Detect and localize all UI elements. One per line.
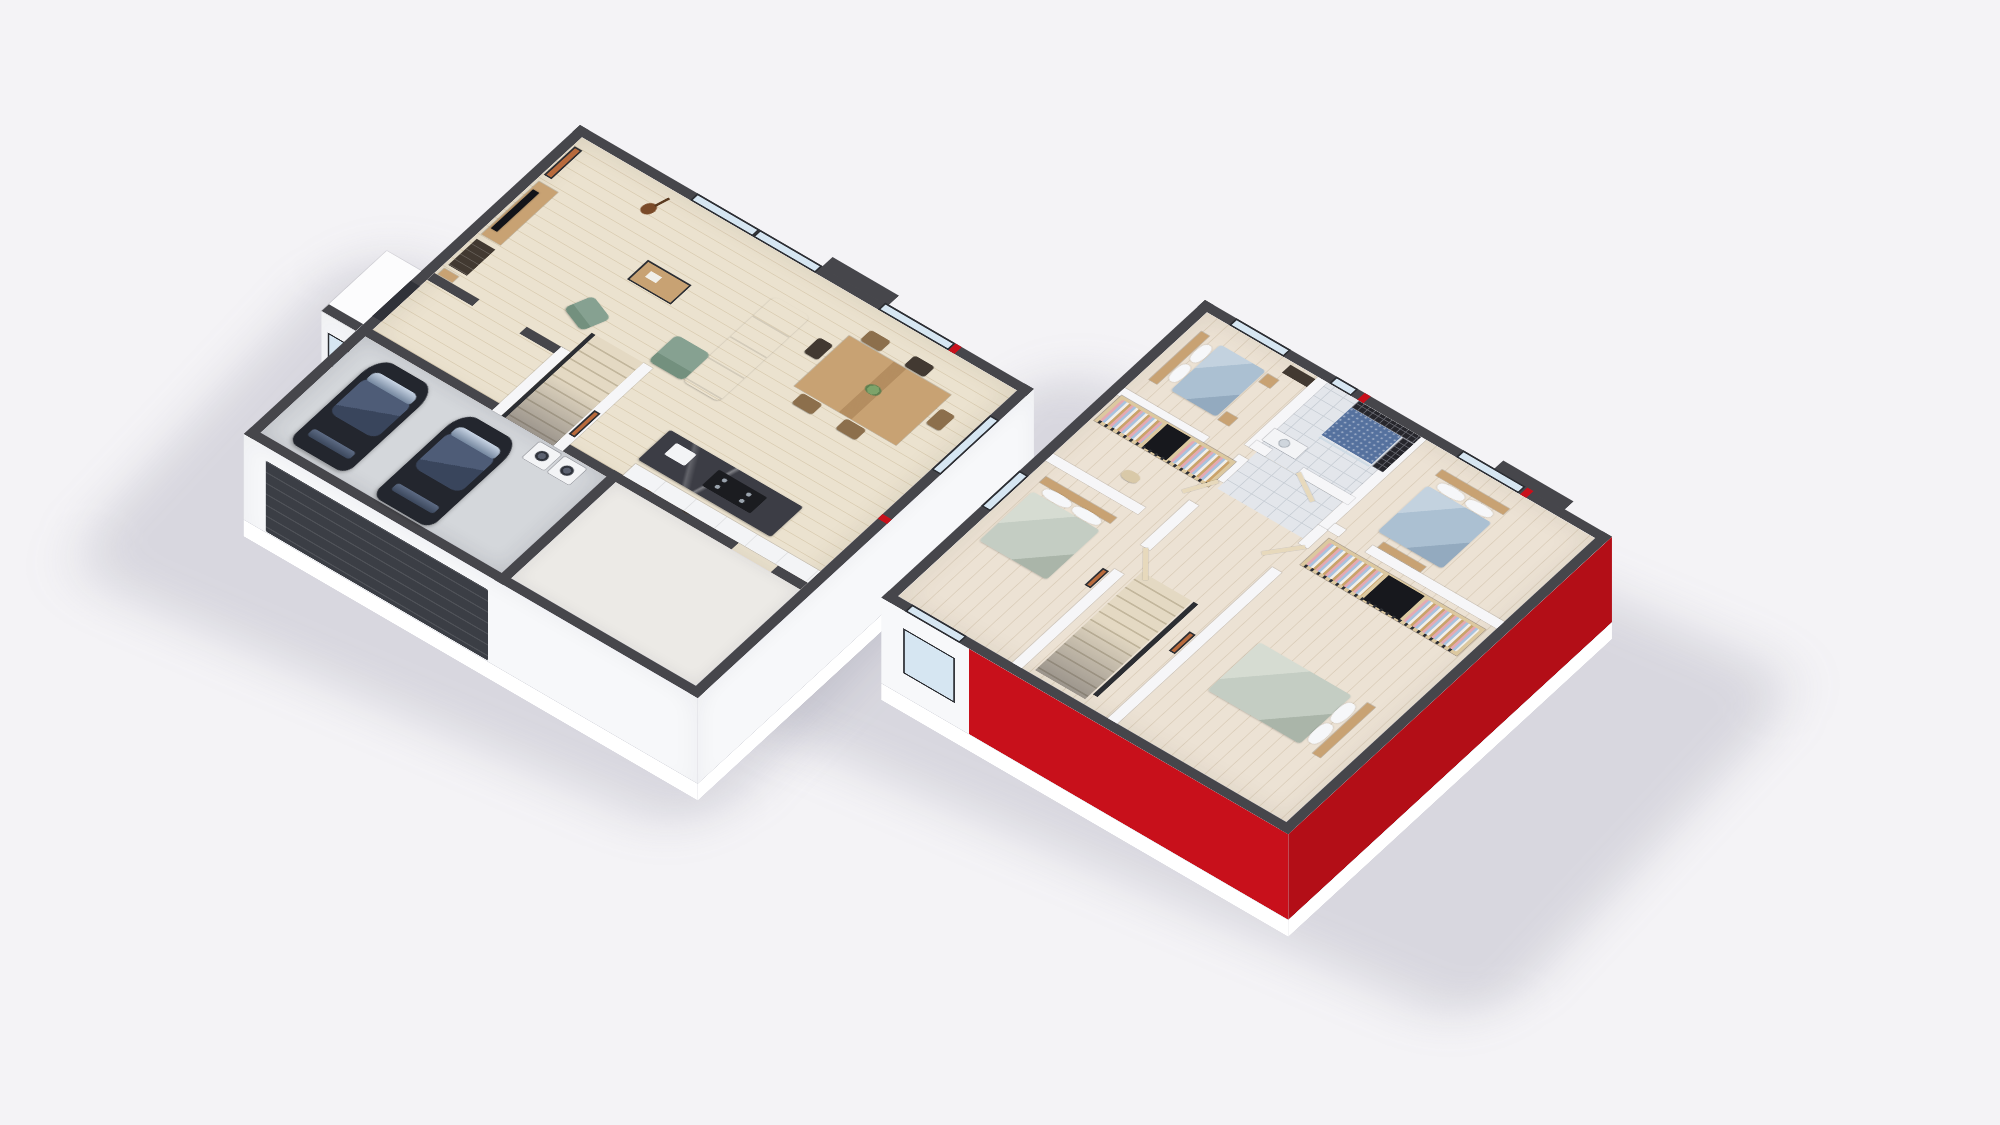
wash-basin xyxy=(1276,437,1293,449)
car-windshield xyxy=(366,371,420,406)
dryer-drum xyxy=(557,463,577,477)
scene xyxy=(0,0,2000,1125)
screenshot-root: { "meta": { "description": "3D isometric… xyxy=(0,0,2000,1125)
car-rear-window xyxy=(391,483,441,514)
washer-drum xyxy=(532,449,552,463)
guitar-neck xyxy=(654,197,670,206)
car-windshield xyxy=(450,425,504,460)
coffee-table-book xyxy=(645,271,662,283)
car-rear-window xyxy=(307,428,357,459)
